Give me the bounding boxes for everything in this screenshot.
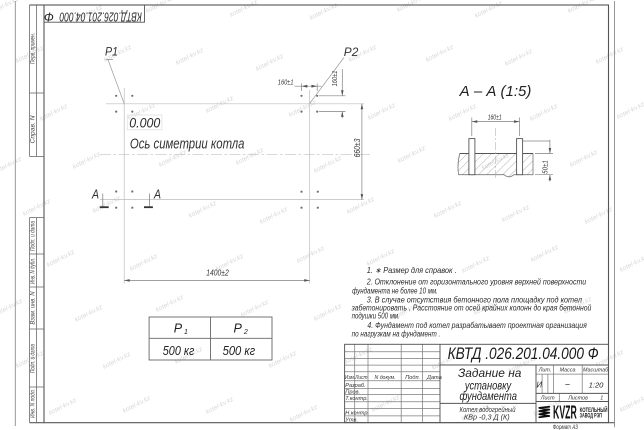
svg-text:И: И — [537, 380, 543, 389]
svg-text:1:20: 1:20 — [589, 380, 605, 389]
svg-text:Дата: Дата — [426, 375, 442, 381]
svg-text:P1: P1 — [105, 47, 118, 59]
svg-text:1: 1 — [600, 396, 603, 402]
svg-text:ЗАВОД РЭП: ЗАВОД РЭП — [580, 414, 602, 420]
svg-text:Т.контр.: Т.контр. — [345, 396, 368, 402]
svg-text:500 кг: 500 кг — [163, 344, 195, 358]
svg-text:1400±2: 1400±2 — [206, 268, 229, 278]
svg-text:КВТД .026.201.04.000 Ф: КВТД .026.201.04.000 Ф — [448, 344, 599, 363]
svg-text:Лит.: Лит. — [538, 368, 552, 374]
svg-text:Лист: Лист — [540, 396, 555, 402]
svg-text:2. Отклонение от горизонтально: 2. Отклонение от горизонтального уровня … — [366, 278, 587, 287]
svg-text:Взам. инв. N: Взам. инв. N — [31, 291, 37, 325]
svg-text:P2: P2 — [344, 47, 359, 59]
svg-text:Инв. N подл.: Инв. N подл. — [31, 389, 37, 418]
svg-text:Изм.Лист: Изм.Лист — [345, 375, 368, 381]
svg-text:KVZR: KVZR — [553, 403, 577, 423]
svg-text:подушки 500 мм.: подушки 500 мм. — [352, 311, 400, 320]
svg-text:160±1: 160±1 — [278, 79, 294, 86]
svg-text:А: А — [91, 187, 99, 202]
svg-text:160±1: 160±1 — [332, 71, 339, 87]
svg-text:КВр -0,3 Д (К): КВр -0,3 Д (К) — [464, 412, 510, 421]
svg-text:Подп. и дата: Подп. и дата — [31, 220, 37, 251]
svg-text:50±1: 50±1 — [542, 160, 549, 174]
svg-text:Подп. и дата: Подп. и дата — [31, 343, 37, 373]
svg-text:Разраб.: Разраб. — [345, 383, 365, 389]
svg-text:160±1: 160±1 — [488, 114, 502, 121]
svg-text:Ф: Ф — [44, 9, 54, 23]
svg-text:КВТД.026.201.04.000: КВТД.026.201.04.000 — [60, 9, 142, 23]
svg-text:по нагрузкам на фундамент .: по нагрузкам на фундамент . — [352, 329, 441, 338]
svg-text:Н.контр.: Н.контр. — [345, 411, 369, 417]
svg-text:500 кг: 500 кг — [223, 344, 256, 358]
svg-text:Справ. N: Справ. N — [31, 115, 37, 144]
svg-text:Листов: Листов — [567, 396, 588, 402]
svg-text:Утв.: Утв. — [344, 417, 358, 423]
svg-text:1. ∗ Размер для справок .: 1. ∗ Размер для справок . — [367, 266, 457, 275]
svg-text:N докум.: N докум. — [375, 375, 396, 381]
svg-text:Пров.: Пров. — [345, 389, 360, 395]
svg-text:Инв. N дубл.: Инв. N дубл. — [31, 258, 37, 284]
svg-text:Масштаб: Масштаб — [583, 368, 609, 374]
svg-text:Масса: Масса — [560, 368, 576, 374]
svg-text:Ось симетрии котла: Ось симетрии котла — [130, 137, 245, 153]
svg-text:Перв. примен.: Перв. примен. — [31, 33, 37, 64]
svg-text:660±3: 660±3 — [352, 138, 362, 157]
svg-text:Формат А3: Формат А3 — [553, 424, 578, 430]
svg-text:фундамента не более 10 мм.: фундамента не более 10 мм. — [352, 287, 438, 296]
svg-text:–: – — [564, 380, 570, 389]
svg-text:фундамента: фундамента — [459, 389, 517, 403]
svg-text:А – А (1:5): А – А (1:5) — [459, 84, 532, 100]
svg-text:0.000: 0.000 — [129, 116, 160, 131]
svg-text:Подп.: Подп. — [405, 375, 420, 381]
svg-text:А: А — [153, 187, 161, 202]
